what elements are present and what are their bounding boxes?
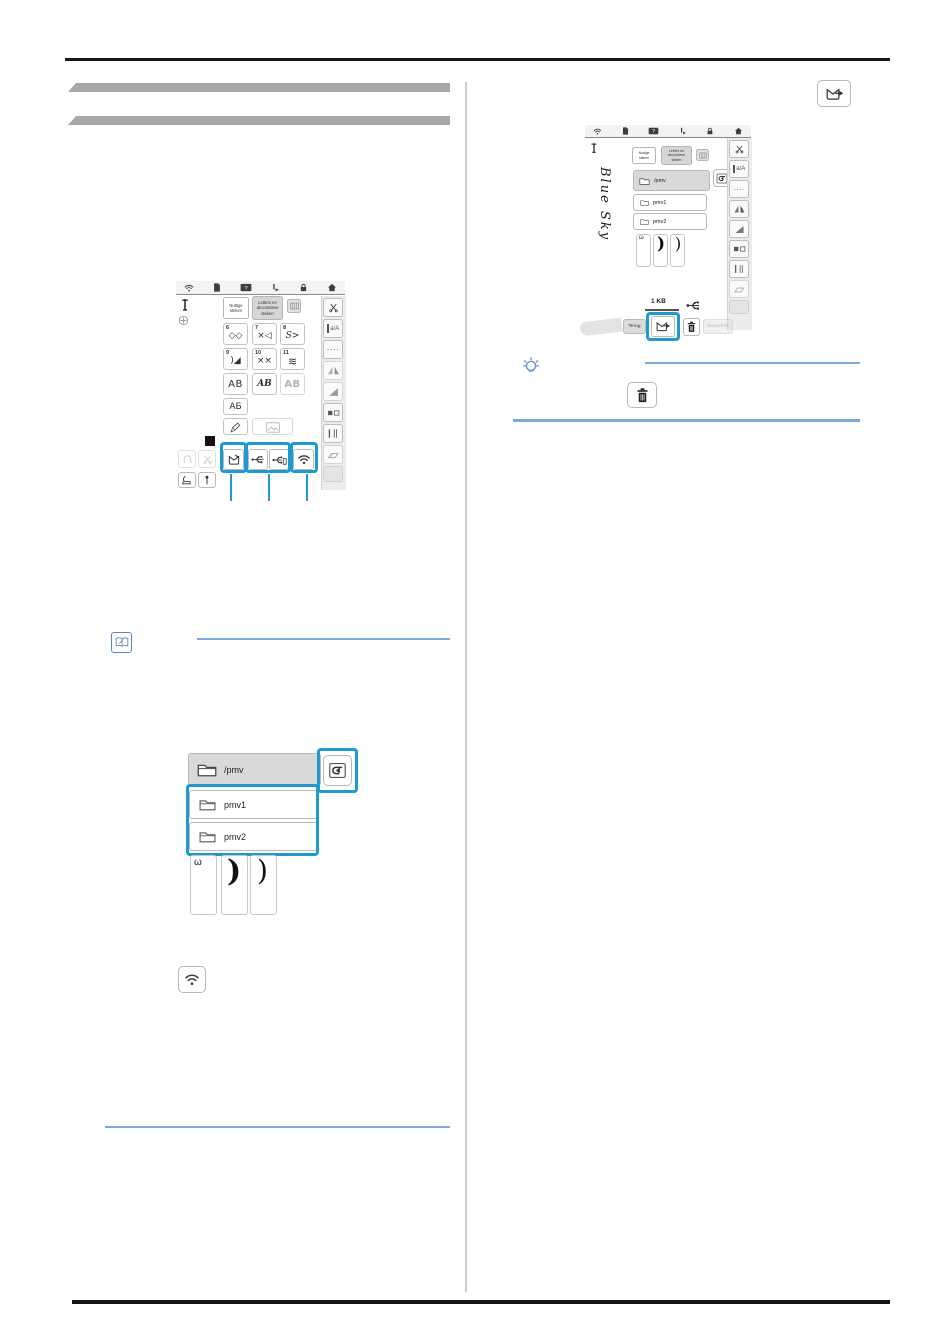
retrieve-inline-button (817, 80, 851, 107)
pocket-save-icon (227, 453, 241, 466)
home-icon (734, 127, 743, 135)
current-path-label: /pmv (224, 765, 244, 775)
pattern-glyph: ) (257, 854, 268, 887)
send-via-wifi-button[interactable] (293, 449, 314, 470)
letters-outline-button[interactable]: AB (280, 373, 305, 395)
needle-threader-icon (271, 283, 280, 292)
stitch-glyph: )◢ (224, 353, 247, 369)
bottom-rule (72, 1300, 890, 1304)
usb-icon (251, 454, 265, 465)
usb-icon (686, 299, 702, 312)
folder-name: pmv2 (653, 219, 666, 225)
back-button[interactable]: Terug (623, 319, 646, 334)
stitch-category-10[interactable]: 10×× (252, 348, 277, 370)
mirror-button[interactable] (323, 361, 343, 380)
letters-label: АБ (224, 399, 247, 414)
screenshot-stitch-select-screen: ? Nuttige steken Letters en decoratieve … (176, 281, 345, 490)
pattern-thumbnail[interactable]: ω (636, 234, 651, 267)
lock-icon (299, 283, 308, 292)
tab-label: Nuttige steken (634, 151, 654, 159)
stitch-category-9[interactable]: 9)◢ (223, 348, 248, 370)
delete-file-button[interactable] (683, 318, 700, 336)
stitch-pattern-icon (290, 302, 299, 310)
tab-pattern-icon[interactable] (287, 299, 301, 313)
top-rule (65, 58, 890, 61)
emboss-icon (733, 285, 746, 294)
stitch-category-8[interactable]: 8S> (280, 323, 305, 345)
undo-icon (182, 454, 193, 464)
wifi-icon (297, 454, 311, 465)
stitch-glyph: ×◁ (253, 328, 276, 344)
current-path-row: /pmv (633, 170, 710, 191)
wifi-inline-button (178, 966, 206, 993)
folder-row-pmv1[interactable]: pmv1 (189, 790, 319, 819)
spacing-button[interactable] (323, 424, 343, 443)
size-bar-icon (327, 324, 329, 333)
needle-threader-icon (679, 127, 687, 135)
embroidery-handwriting-preview: Blue Sky (597, 167, 612, 317)
folder-name: pmv1 (224, 800, 246, 810)
more-options-button[interactable]: ···· (729, 180, 749, 198)
folder-row-pmv2[interactable]: pmv2 (633, 213, 707, 230)
folder-row-pmv1[interactable]: pmv1 (633, 194, 707, 211)
more-options-button[interactable]: ···· (323, 340, 343, 359)
scissors-icon (328, 302, 339, 313)
current-path-row: /pmv (188, 753, 321, 786)
mirror-icon (327, 365, 340, 376)
file-size-label: 1 KB (651, 298, 666, 305)
wifi-icon (184, 284, 194, 292)
tab-label: Letters en decoratieve steken (254, 300, 281, 315)
trash-icon (635, 387, 650, 404)
flip-button[interactable] (323, 382, 343, 401)
case-label: a/A (330, 326, 339, 332)
callout-leader-line (230, 474, 232, 501)
letters-label: AB (281, 374, 304, 394)
guide-line (197, 638, 450, 640)
letters-script-button[interactable]: AB (252, 373, 277, 395)
save-to-memory-button[interactable] (223, 449, 244, 470)
emboss-icon (327, 450, 340, 460)
tab-utility-stitches[interactable]: Nuttige steken (223, 297, 249, 319)
tab-letters-decorative[interactable]: Letters en decoratieve steken (252, 296, 283, 320)
stitch-category-7[interactable]: 7×◁ (252, 323, 277, 345)
stitch-pattern-icon (699, 152, 707, 159)
scissors-icon (202, 454, 213, 465)
my-custom-stitch-button[interactable] (223, 418, 248, 435)
folder-up-button[interactable] (323, 755, 352, 786)
stitch-category-11[interactable]: 11≋ (280, 348, 305, 370)
handwriting-text: Blue Sky (597, 167, 612, 241)
hint-lightbulb-icon (521, 354, 541, 376)
density-button[interactable] (729, 240, 749, 258)
stitch-glyph: ×× (253, 353, 276, 369)
help-icon: ? (648, 127, 659, 135)
delete-inline-button (627, 382, 657, 408)
tab-label: Nuttige steken (225, 303, 247, 313)
plus-target-icon (178, 315, 189, 326)
scissors-icon (734, 144, 745, 154)
svg-text:?: ? (652, 129, 655, 135)
folder-name: pmv2 (224, 832, 246, 842)
pattern-glyph: ) (227, 854, 241, 889)
color-swatch (205, 436, 215, 446)
dots-label: ···· (327, 345, 340, 354)
callout-leader-line (268, 474, 270, 501)
thread-cut-button[interactable] (729, 140, 749, 158)
tab-letters-decorative[interactable]: Letters en decoratieve steken (661, 146, 692, 165)
save-to-usb1-button[interactable] (248, 449, 268, 470)
folder-icon (199, 830, 216, 843)
callout-leader-line (306, 474, 308, 501)
machine-status-bar: ? (585, 125, 751, 138)
save-to-usb2-button[interactable] (269, 449, 289, 470)
spacing-button[interactable] (729, 260, 749, 278)
pen-icon (230, 422, 242, 433)
pattern-thumbnail[interactable]: ω (190, 855, 217, 915)
folder-icon (197, 762, 217, 777)
pin-mark-button[interactable] (198, 472, 216, 488)
density-button[interactable] (323, 403, 343, 422)
blank-button (729, 300, 749, 314)
pocket-retrieve-icon (825, 86, 844, 102)
return-arrow-icon (328, 762, 347, 779)
squares-icon (327, 409, 340, 417)
stitch-glyph: ≋ (281, 353, 304, 369)
image-icon (266, 422, 280, 433)
wifi-icon (184, 973, 200, 986)
file-size-underline (645, 309, 679, 311)
folder-icon (640, 218, 649, 225)
needle-drop-marker-icon (589, 142, 599, 156)
pattern-thumbnail[interactable]: ) (250, 855, 277, 915)
pattern-glyph: ) (675, 234, 681, 253)
pattern-thumbnail[interactable]: ) (670, 234, 685, 267)
section-divider-line (105, 1126, 450, 1128)
stitch-category-6[interactable]: 6◇◇ (223, 323, 248, 345)
pattern-glyph: ) (657, 234, 665, 254)
home-icon (327, 283, 337, 292)
mirror-icon (733, 204, 746, 214)
machine-status-bar: ? (176, 281, 345, 295)
tab-label: Letters en decoratieve steken (663, 149, 690, 161)
pattern-thumbnail[interactable]: ) (221, 855, 248, 915)
letters-label: AB (253, 374, 276, 394)
emboss-button[interactable] (323, 445, 343, 464)
mirror-button[interactable] (729, 200, 749, 218)
dots-label: ···· (734, 185, 745, 194)
presser-foot-icon (181, 475, 193, 485)
case-label: a/A (736, 166, 745, 172)
letter-size-button[interactable]: a/A (323, 319, 343, 338)
tab-pattern-icon[interactable] (696, 149, 709, 161)
wifi-icon (593, 128, 602, 135)
flip-button[interactable] (729, 220, 749, 238)
flip-triangle-icon (733, 225, 745, 234)
current-path-label: /pmv (654, 178, 666, 184)
flip-triangle-icon (327, 387, 339, 397)
squares-icon (733, 245, 746, 253)
needle-drop-marker-icon (179, 298, 191, 314)
guide-line (645, 362, 860, 364)
screenshot-retrieve-screen: ? Nuttige steken Letters en decoratieve … (583, 123, 753, 341)
redacted-heading-bar (68, 116, 450, 125)
pattern-glyph: ω (194, 857, 202, 868)
section-divider-line (513, 419, 860, 422)
undo-button[interactable] (178, 450, 196, 468)
usb-device-icon (272, 454, 287, 466)
letter-size-button[interactable]: a/A (729, 160, 749, 178)
pocket-retrieve-icon (655, 320, 671, 333)
pattern-glyph: ω (639, 235, 644, 241)
spacing-icon (327, 428, 339, 439)
pattern-image-button[interactable] (252, 418, 293, 435)
folder-icon (640, 199, 649, 206)
blank-button (323, 466, 343, 482)
retrieve-pattern-button[interactable] (651, 316, 675, 337)
emboss-button[interactable] (729, 280, 749, 298)
folder-icon (199, 798, 216, 811)
lock-icon (706, 127, 714, 135)
stitch-glyph: ◇◇ (224, 328, 247, 344)
file-icon (213, 283, 221, 292)
letters-label: AB (224, 374, 247, 394)
manual-page: ? Nuttige steken Letters en decoratieve … (0, 0, 950, 1344)
pattern-thumbnail[interactable]: ) (653, 234, 668, 267)
edit-button[interactable]: Bewerken (703, 319, 733, 334)
folder-row-pmv2[interactable]: pmv2 (189, 822, 319, 851)
edit-label: Bewerken (707, 324, 728, 329)
column-divider (465, 82, 467, 1292)
letters-cyrillic-button[interactable]: АБ (223, 398, 248, 415)
delete-stitch-button[interactable] (198, 450, 216, 468)
stitch-glyph: S> (281, 328, 304, 344)
trash-icon (686, 321, 697, 333)
presser-foot-button[interactable] (178, 472, 196, 488)
memo-note-icon (111, 632, 132, 653)
back-label: Terug (629, 324, 641, 329)
pin-icon (203, 475, 211, 486)
spacing-icon (733, 264, 745, 274)
tab-utility-stitches[interactable]: Nuttige steken (632, 147, 656, 164)
letters-sans-button[interactable]: AB (223, 373, 248, 395)
screenshot-folder-browser: /pmv pmv1 pmv2 ω ) ) (186, 748, 362, 918)
file-icon (622, 127, 629, 135)
help-icon: ? (240, 283, 252, 292)
folder-name: pmv1 (653, 200, 666, 206)
redacted-heading-bar (68, 83, 450, 92)
size-bar-icon (733, 165, 735, 173)
thread-cut-button[interactable] (323, 298, 343, 317)
folder-icon (639, 177, 650, 185)
